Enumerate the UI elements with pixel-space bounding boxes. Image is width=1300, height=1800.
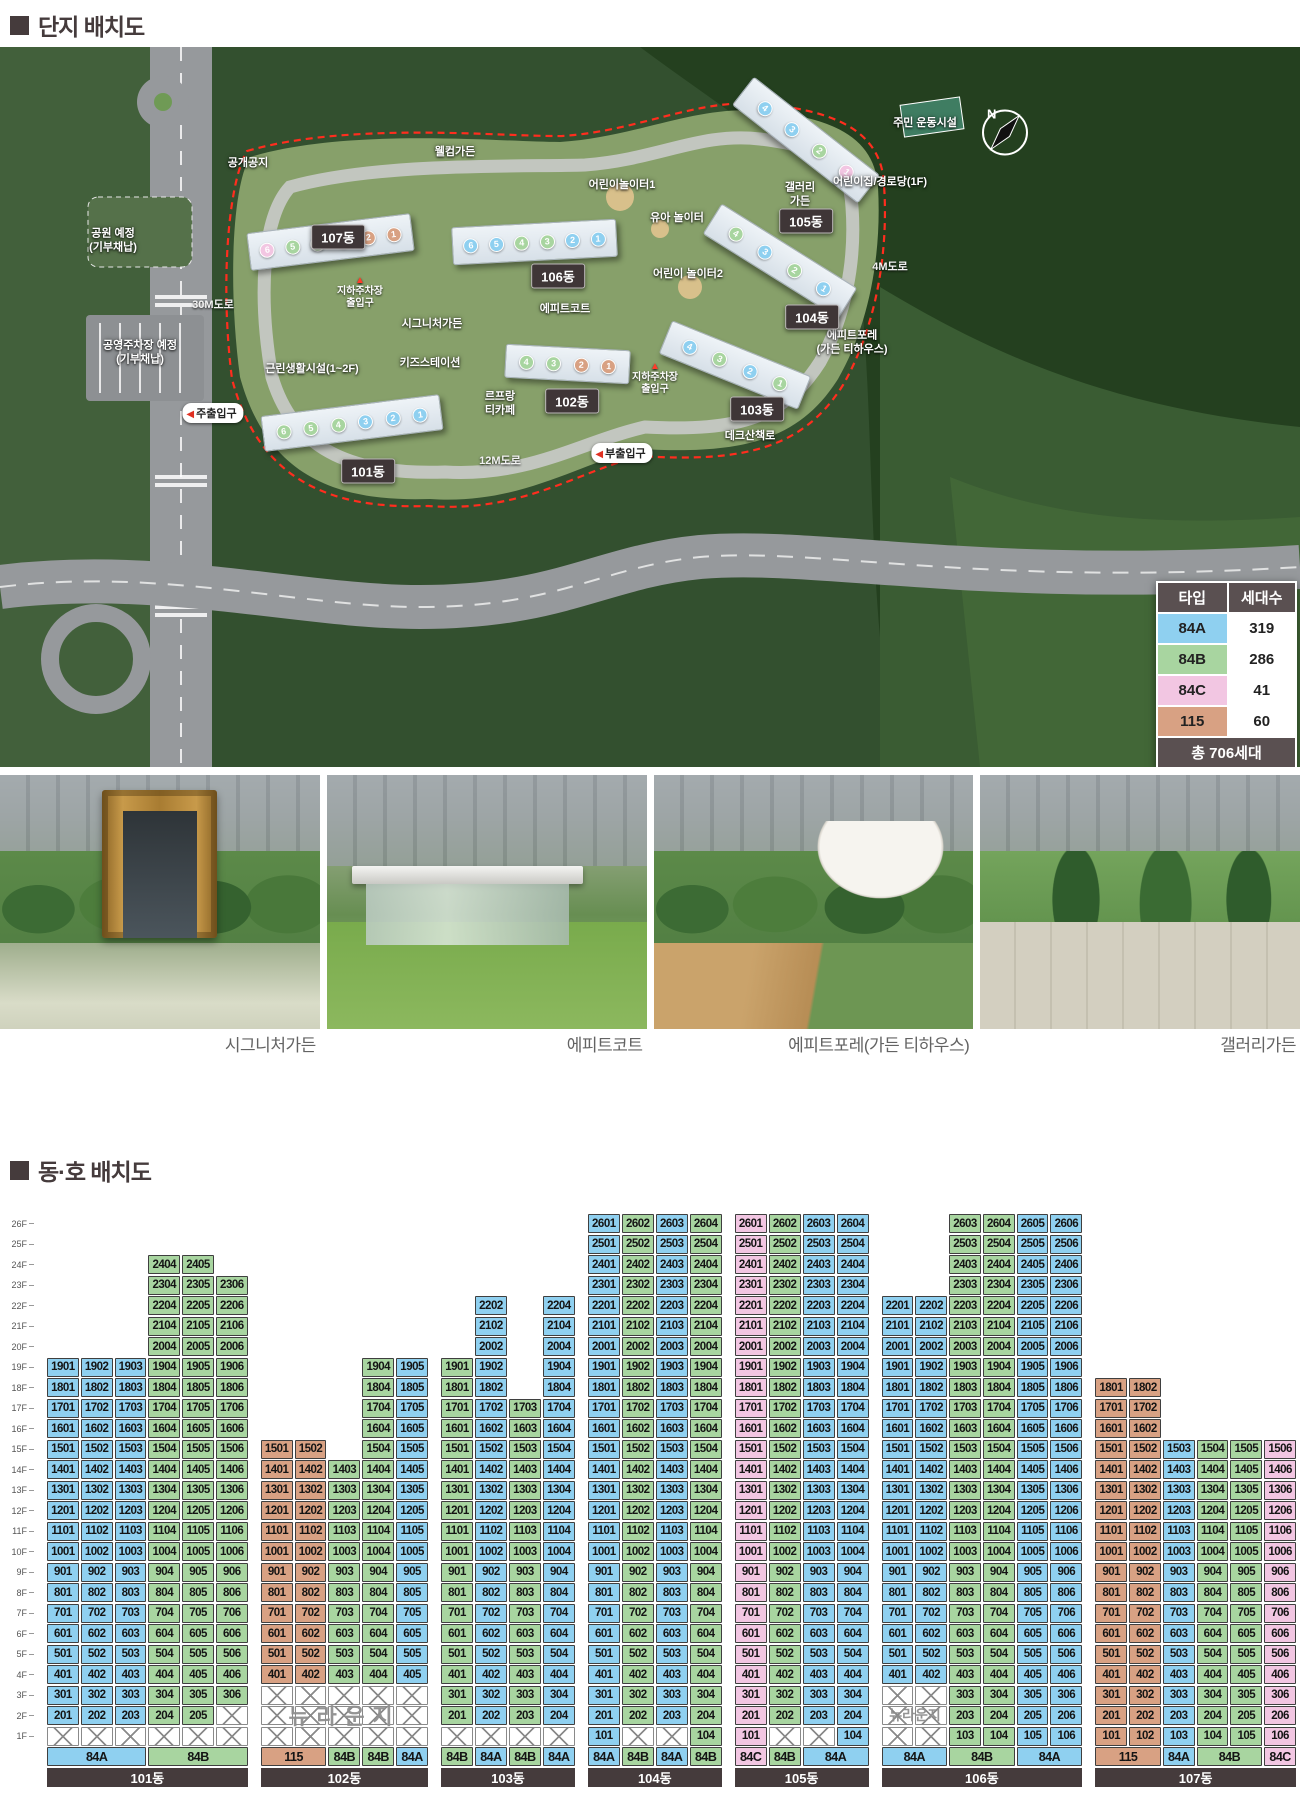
unit-cell: 703 <box>509 1604 541 1623</box>
unit-cell: 1204 <box>690 1501 722 1520</box>
unit-cell: 303 <box>949 1686 981 1705</box>
unit-cell: 702 <box>475 1604 507 1623</box>
unit-cell: 1702 <box>915 1399 947 1418</box>
no-unit-cell <box>47 1727 79 1746</box>
unit-cell: 104 <box>983 1727 1015 1746</box>
unit-cell: 704 <box>148 1604 180 1623</box>
unit-cell: 1903 <box>115 1358 147 1377</box>
unit-cell: 204 <box>1197 1706 1229 1725</box>
no-unit-cell <box>328 1706 360 1725</box>
unit-cell: 2101 <box>735 1317 767 1336</box>
unit-cell: 901 <box>47 1563 79 1582</box>
unit-cell: 1803 <box>803 1378 835 1397</box>
unit-cell: 1305 <box>1230 1481 1262 1500</box>
unit-position-marker: 4 <box>726 223 747 244</box>
unit-cell: 2001 <box>735 1337 767 1356</box>
header-square-bullet <box>10 16 29 35</box>
grid-building-106: 4015016017018019011001110112011301140115… <box>882 1214 1083 1787</box>
unit-cell: 2105 <box>182 1317 214 1336</box>
legend-count: 60 <box>1227 707 1296 736</box>
floor-axis: 26F25F24F23F22F21F20F19F18F17F16F15F14F1… <box>2 1214 34 1746</box>
unit-cell: 1003 <box>1163 1542 1195 1561</box>
unit-cell: 1403 <box>949 1460 981 1479</box>
unit-cell: 405 <box>396 1665 428 1684</box>
unit-cell: 905 <box>1230 1563 1262 1582</box>
unit-cell: 1104 <box>690 1522 722 1541</box>
unit-position-marker: 4 <box>755 98 776 119</box>
unit-cell: 303 <box>1163 1686 1195 1705</box>
unit-cell: 1802 <box>1129 1378 1161 1397</box>
unit-cell: 504 <box>837 1645 869 1664</box>
unit-position-marker: 3 <box>782 119 803 140</box>
unit-cell: 1201 <box>47 1501 79 1520</box>
unit-cell: 304 <box>543 1686 575 1705</box>
unit-cell: 1804 <box>690 1378 722 1397</box>
unit-position-marker: 2 <box>565 232 581 248</box>
unit-cell: 602 <box>915 1624 947 1643</box>
unit-cell: 1501 <box>882 1440 914 1459</box>
unit-cell: 304 <box>983 1686 1015 1705</box>
unit-cell: 502 <box>475 1645 507 1664</box>
unit-cell: 2303 <box>949 1276 981 1295</box>
floor-label: 3F <box>2 1686 34 1705</box>
unit-cell: 2105 <box>1017 1317 1049 1336</box>
unit-cell: 603 <box>949 1624 981 1643</box>
unit-cell: 1602 <box>475 1419 507 1438</box>
unit-cell: 506 <box>1264 1645 1296 1664</box>
unit-cell: 2204 <box>837 1296 869 1315</box>
unit-cell: 902 <box>1129 1563 1161 1582</box>
unit-cell: 1802 <box>769 1378 801 1397</box>
unit-cell: 1805 <box>1017 1378 1049 1397</box>
unit-cell: 2205 <box>1017 1296 1049 1315</box>
floor-label: 1F <box>2 1727 34 1746</box>
unit-cell: 1404 <box>690 1460 722 1479</box>
unit-cell: 1703 <box>115 1399 147 1418</box>
unit-cell: 2102 <box>622 1317 654 1336</box>
unit-cell: 2004 <box>983 1337 1015 1356</box>
entrance-label: 부출입구 <box>605 448 645 460</box>
unit-cell: 1702 <box>475 1399 507 1418</box>
unit-cell: 2101 <box>588 1317 620 1336</box>
grid-building-103: 2013014015016017018019011001110112011301… <box>441 1214 575 1787</box>
unit-cell: 104 <box>837 1727 869 1746</box>
type-row-label: 84A <box>656 1747 688 1766</box>
unit-cell: 903 <box>656 1563 688 1582</box>
unit-cell: 2602 <box>622 1214 654 1233</box>
unit-cell: 503 <box>656 1645 688 1664</box>
photo-captions: 시그니처가든에피트코트에피트포레(가든 티하우스)갤러리가든 <box>0 1029 1300 1057</box>
unit-cell: 2204 <box>543 1296 575 1315</box>
unit-cell: 1902 <box>81 1358 113 1377</box>
unit-cell: 403 <box>803 1665 835 1684</box>
unit-cell: 1104 <box>543 1522 575 1541</box>
road-label: 30M도로 <box>192 296 234 312</box>
unit-cell: 1102 <box>295 1522 327 1541</box>
unit-cell: 1505 <box>396 1440 428 1459</box>
unit-cell: 1202 <box>295 1501 327 1520</box>
unit-cell: 801 <box>735 1583 767 1602</box>
unit-cell: 1302 <box>475 1481 507 1500</box>
unit-cell: 903 <box>1163 1563 1195 1582</box>
unit-cell: 2103 <box>949 1317 981 1336</box>
unit-position-marker: 6 <box>259 241 276 258</box>
unit-cell: 1304 <box>1197 1481 1229 1500</box>
unit-cell: 505 <box>396 1645 428 1664</box>
header-square-bullet <box>10 1161 29 1180</box>
unit-cell: 804 <box>148 1583 180 1602</box>
red-arrow-icon: ◀ <box>186 409 194 420</box>
unit-cell: 2402 <box>622 1255 654 1274</box>
unit-cell: 1601 <box>588 1419 620 1438</box>
unit-cell: 904 <box>1197 1563 1229 1582</box>
unit-cell: 405 <box>1017 1665 1049 1684</box>
unit-position-marker: 6 <box>275 423 292 440</box>
unit-cell: 2305 <box>182 1276 214 1295</box>
unit-cell: 1504 <box>148 1440 180 1459</box>
unit-position-marker: 1 <box>412 406 429 423</box>
unit-cell: 1101 <box>441 1522 473 1541</box>
photo-caption: 에피트코트 <box>327 1031 647 1056</box>
unit-cell: 1704 <box>690 1399 722 1418</box>
unit-cell: 401 <box>735 1665 767 1684</box>
unit-cell: 1203 <box>803 1501 835 1520</box>
unit-cell: 1704 <box>983 1399 1015 1418</box>
unit-cell: 1406 <box>1264 1460 1296 1479</box>
unit-cell: 1001 <box>735 1542 767 1561</box>
unit-cell: 2501 <box>588 1235 620 1254</box>
unit-cell: 1602 <box>915 1419 947 1438</box>
unit-cell: 1601 <box>882 1419 914 1438</box>
unit-cell: 2501 <box>735 1235 767 1254</box>
no-unit-cell <box>475 1727 507 1746</box>
unit-cell: 2205 <box>182 1296 214 1315</box>
unit-cell: 1202 <box>81 1501 113 1520</box>
unit-cell: 1306 <box>216 1481 248 1500</box>
unit-cell: 1406 <box>1050 1460 1082 1479</box>
unit-cell: 1402 <box>769 1460 801 1479</box>
unit-cell: 1703 <box>656 1399 688 1418</box>
unit-cell: 1901 <box>735 1358 767 1377</box>
no-unit-cell <box>362 1706 394 1725</box>
unit-cell: 2503 <box>803 1235 835 1254</box>
unit-cell: 1702 <box>769 1399 801 1418</box>
unit-cell: 503 <box>949 1645 981 1664</box>
unit-cell: 402 <box>475 1665 507 1684</box>
unit-cell: 1204 <box>148 1501 180 1520</box>
unit-cell: 1001 <box>588 1542 620 1561</box>
unit-cell: 206 <box>1050 1706 1082 1725</box>
unit-cell: 2002 <box>769 1337 801 1356</box>
unit-position-marker: 3 <box>755 241 776 262</box>
site-plan-map: 6543214321432143214321654321654321공개공지웰컴… <box>0 47 1300 767</box>
unit-cell: 1806 <box>1050 1378 1082 1397</box>
no-unit-cell <box>656 1727 688 1746</box>
unit-cell: 1101 <box>588 1522 620 1541</box>
unit-cell: 901 <box>735 1563 767 1582</box>
unit-cell: 1501 <box>735 1440 767 1459</box>
photo-gallery-garden <box>980 775 1300 1029</box>
unit-cell: 1304 <box>837 1481 869 1500</box>
unit-cell: 1502 <box>1129 1440 1161 1459</box>
unit-cell: 2006 <box>1050 1337 1082 1356</box>
unit-cell: 1003 <box>656 1542 688 1561</box>
type-row-label: 84A <box>1163 1747 1195 1766</box>
unit-cell: 1705 <box>396 1399 428 1418</box>
unit-cell: 2103 <box>803 1317 835 1336</box>
unit-cell: 1203 <box>115 1501 147 1520</box>
unit-cell: 1401 <box>261 1460 293 1479</box>
unit-cell: 402 <box>81 1665 113 1684</box>
unit-cell: 2003 <box>949 1337 981 1356</box>
unit-cell: 2106 <box>1050 1317 1082 1336</box>
unit-cell: 2402 <box>769 1255 801 1274</box>
unit-cell: 404 <box>148 1665 180 1684</box>
unit-cell: 2201 <box>588 1296 620 1315</box>
type-row-label: 84A <box>475 1747 507 1766</box>
unit-position-marker: 4 <box>680 337 700 357</box>
unit-cell: 1306 <box>1264 1481 1296 1500</box>
unit-cell: 2403 <box>803 1255 835 1274</box>
unit-cell: 1001 <box>882 1542 914 1561</box>
unit-cell: 2301 <box>735 1276 767 1295</box>
unit-cell: 403 <box>1163 1665 1195 1684</box>
unit-cell: 1801 <box>588 1378 620 1397</box>
floor-label: 24F <box>2 1255 34 1274</box>
unit-cell: 2404 <box>983 1255 1015 1274</box>
unit-cell: 404 <box>362 1665 394 1684</box>
unit-cell: 2303 <box>656 1276 688 1295</box>
unit-cell: 1302 <box>622 1481 654 1500</box>
unit-cell: 1105 <box>396 1522 428 1541</box>
unit-cell: 1305 <box>1017 1481 1049 1500</box>
type-row-label: 84B <box>148 1747 247 1766</box>
no-unit-cell <box>362 1686 394 1705</box>
unit-cell: 505 <box>1017 1645 1049 1664</box>
unit-cell: 401 <box>882 1665 914 1684</box>
legend-count: 319 <box>1227 614 1296 643</box>
unit-cell: 1003 <box>328 1542 360 1561</box>
building-name-bar: 105동 <box>735 1768 869 1787</box>
photo-strip <box>0 775 1300 1029</box>
unit-cell: 902 <box>295 1563 327 1582</box>
unit-cell: 904 <box>362 1563 394 1582</box>
unit-cell: 1502 <box>915 1440 947 1459</box>
unit-cell: 2404 <box>690 1255 722 1274</box>
unit-cell: 705 <box>1230 1604 1262 1623</box>
unit-position-marker: 1 <box>385 226 402 243</box>
unit-cell: 805 <box>1230 1583 1262 1602</box>
no-unit-cell <box>396 1706 428 1725</box>
unit-cell: 1205 <box>1230 1501 1262 1520</box>
no-unit-cell <box>915 1706 947 1725</box>
unit-cell: 1606 <box>216 1419 248 1438</box>
type-row-label: 84A <box>396 1747 428 1766</box>
unit-cell: 803 <box>1163 1583 1195 1602</box>
floor-label: 6F <box>2 1624 34 1643</box>
unit-cell: 1103 <box>328 1522 360 1541</box>
unit-cell: 906 <box>1050 1563 1082 1582</box>
unit-cell: 1904 <box>362 1358 394 1377</box>
unit-cell: 201 <box>735 1706 767 1725</box>
unit-cell: 1303 <box>328 1481 360 1500</box>
unit-cell: 1102 <box>915 1522 947 1541</box>
unit-cell: 2303 <box>803 1276 835 1295</box>
unit-cell: 701 <box>588 1604 620 1623</box>
unit-cell: 1106 <box>216 1522 248 1541</box>
unit-cell: 1505 <box>1017 1440 1049 1459</box>
unit-position-marker: 4 <box>518 354 534 370</box>
unit-cell: 2104 <box>837 1317 869 1336</box>
unit-cell: 2104 <box>148 1317 180 1336</box>
facility-label: 어린이집/경로당(1F) <box>833 176 927 190</box>
unit-cell: 601 <box>441 1624 473 1643</box>
no-unit-cell <box>295 1686 327 1705</box>
unit-cell: 1103 <box>803 1522 835 1541</box>
unit-cell: 1003 <box>949 1542 981 1561</box>
unit-grid: 1012013014015016017018019011001110112011… <box>735 1214 869 1787</box>
unit-cell: 706 <box>216 1604 248 1623</box>
unit-cell: 306 <box>1264 1686 1296 1705</box>
type-row-label: 115 <box>261 1747 327 1766</box>
unit-cell: 2603 <box>803 1214 835 1233</box>
unit-cell: 201 <box>47 1706 79 1725</box>
unit-cell: 606 <box>1050 1624 1082 1643</box>
photo-epit-foret <box>654 775 974 1029</box>
unit-cell: 1402 <box>295 1460 327 1479</box>
unit-cell: 1002 <box>295 1542 327 1561</box>
unit-cell: 1301 <box>882 1481 914 1500</box>
unit-cell: 704 <box>837 1604 869 1623</box>
unit-cell: 1502 <box>475 1440 507 1459</box>
unit-cell: 1401 <box>441 1460 473 1479</box>
unit-cell: 1403 <box>509 1460 541 1479</box>
unit-cell: 2001 <box>882 1337 914 1356</box>
unit-cell: 601 <box>882 1624 914 1643</box>
unit-cell: 1105 <box>1230 1522 1262 1541</box>
building-name-bar: 103동 <box>441 1768 575 1787</box>
unit-cell: 203 <box>115 1706 147 1725</box>
unit-cell: 602 <box>622 1624 654 1643</box>
grid-building-105: 1012013014015016017018019011001110112011… <box>735 1214 869 1787</box>
unit-cell: 1603 <box>803 1419 835 1438</box>
unit-cell: 1902 <box>622 1358 654 1377</box>
unit-cell: 1301 <box>441 1481 473 1500</box>
unit-cell: 1003 <box>115 1542 147 1561</box>
entrance-label: 주출입구 <box>196 408 236 420</box>
unit-cell: 2004 <box>690 1337 722 1356</box>
unit-cell: 706 <box>1050 1604 1082 1623</box>
unit-cell: 1201 <box>261 1501 293 1520</box>
unit-cell: 606 <box>216 1624 248 1643</box>
unit-cell: 503 <box>328 1645 360 1664</box>
unit-grid: 2013014015016017018019011001110112011301… <box>441 1214 575 1787</box>
unit-cell: 703 <box>656 1604 688 1623</box>
unit-cell: 603 <box>803 1624 835 1643</box>
unit-cell: 1103 <box>656 1522 688 1541</box>
unit-cell: 701 <box>882 1604 914 1623</box>
map-building-block: 4321 <box>504 344 631 384</box>
unit-cell: 105 <box>1017 1727 1049 1746</box>
unit-cell: 1103 <box>949 1522 981 1541</box>
unit-cell: 1103 <box>115 1522 147 1541</box>
unit-cell: 201 <box>588 1706 620 1725</box>
floor-label: 13F <box>2 1481 34 1500</box>
unit-cell: 1303 <box>115 1481 147 1500</box>
unit-cell: 1503 <box>1163 1440 1195 1459</box>
floor-label: 23F <box>2 1276 34 1295</box>
unit-cell: 1504 <box>1197 1440 1229 1459</box>
unit-grid: 1012013014015016017018019011001110112011… <box>588 1214 722 1787</box>
unit-cell: 1906 <box>1050 1358 1082 1377</box>
unit-grid: 1012013014015016017018019011001110112011… <box>1095 1214 1296 1787</box>
unit-cell: 2005 <box>182 1337 214 1356</box>
unit-cell: 1503 <box>803 1440 835 1459</box>
unit-cell: 901 <box>882 1563 914 1582</box>
unit-cell: 1206 <box>1050 1501 1082 1520</box>
unit-cell: 1603 <box>656 1419 688 1438</box>
unit-cell: 1203 <box>1163 1501 1195 1520</box>
type-row-label: 84B <box>1197 1747 1263 1766</box>
unit-cell: 1503 <box>509 1440 541 1459</box>
facility-label: 유아 놀이터 <box>650 212 704 226</box>
unit-cell: 1005 <box>1230 1542 1262 1561</box>
underground-parking-entrance-label: ▲지하주차장 출입구 <box>632 362 678 396</box>
unit-cell: 1603 <box>949 1419 981 1438</box>
unit-cell: 802 <box>81 1583 113 1602</box>
unit-cell: 2002 <box>475 1337 507 1356</box>
unit-cell: 1903 <box>656 1358 688 1377</box>
unit-cell: 1203 <box>656 1501 688 1520</box>
unit-cell: 405 <box>1230 1665 1262 1684</box>
unit-cell: 506 <box>1050 1645 1082 1664</box>
photo-epit-court <box>327 775 647 1029</box>
unit-cell: 102 <box>1129 1727 1161 1746</box>
unit-position-marker: 1 <box>814 278 835 299</box>
unit-cell: 905 <box>182 1563 214 1582</box>
underground-label-text: 지하주차장 출입구 <box>337 286 383 309</box>
unit-cell: 2104 <box>690 1317 722 1336</box>
unit-cell: 502 <box>1129 1645 1161 1664</box>
unit-cell: 105 <box>1230 1727 1262 1746</box>
no-unit-cell <box>915 1686 947 1705</box>
unit-cell: 303 <box>656 1686 688 1705</box>
unit-layout-grid: 26F25F24F23F22F21F20F19F18F17F16F15F14F1… <box>0 1214 1300 1787</box>
unit-cell: 401 <box>1095 1665 1127 1684</box>
unit-cell: 205 <box>182 1706 214 1725</box>
unit-cell: 1504 <box>837 1440 869 1459</box>
unit-cell: 904 <box>690 1563 722 1582</box>
no-unit-cell <box>543 1727 575 1746</box>
unit-cell: 1504 <box>362 1440 394 1459</box>
unit-cell: 2004 <box>148 1337 180 1356</box>
unit-cell: 2604 <box>690 1214 722 1233</box>
legend-row: 84C41 <box>1158 674 1295 705</box>
unit-cell: 904 <box>837 1563 869 1582</box>
unit-cell: 1505 <box>1230 1440 1262 1459</box>
unit-cell: 703 <box>115 1604 147 1623</box>
unit-position-marker: 5 <box>284 238 301 255</box>
unit-cell: 1203 <box>509 1501 541 1520</box>
unit-cell: 2503 <box>949 1235 981 1254</box>
unit-grid: 2013014015016017018019011001110112011301… <box>47 1214 248 1787</box>
unit-cell: 1701 <box>735 1399 767 1418</box>
unit-cell: 901 <box>1095 1563 1127 1582</box>
building-badge: 102동 <box>545 389 599 414</box>
unit-cell: 1402 <box>81 1460 113 1479</box>
unit-cell: 2304 <box>983 1276 1015 1295</box>
unit-cell: 1205 <box>182 1501 214 1520</box>
